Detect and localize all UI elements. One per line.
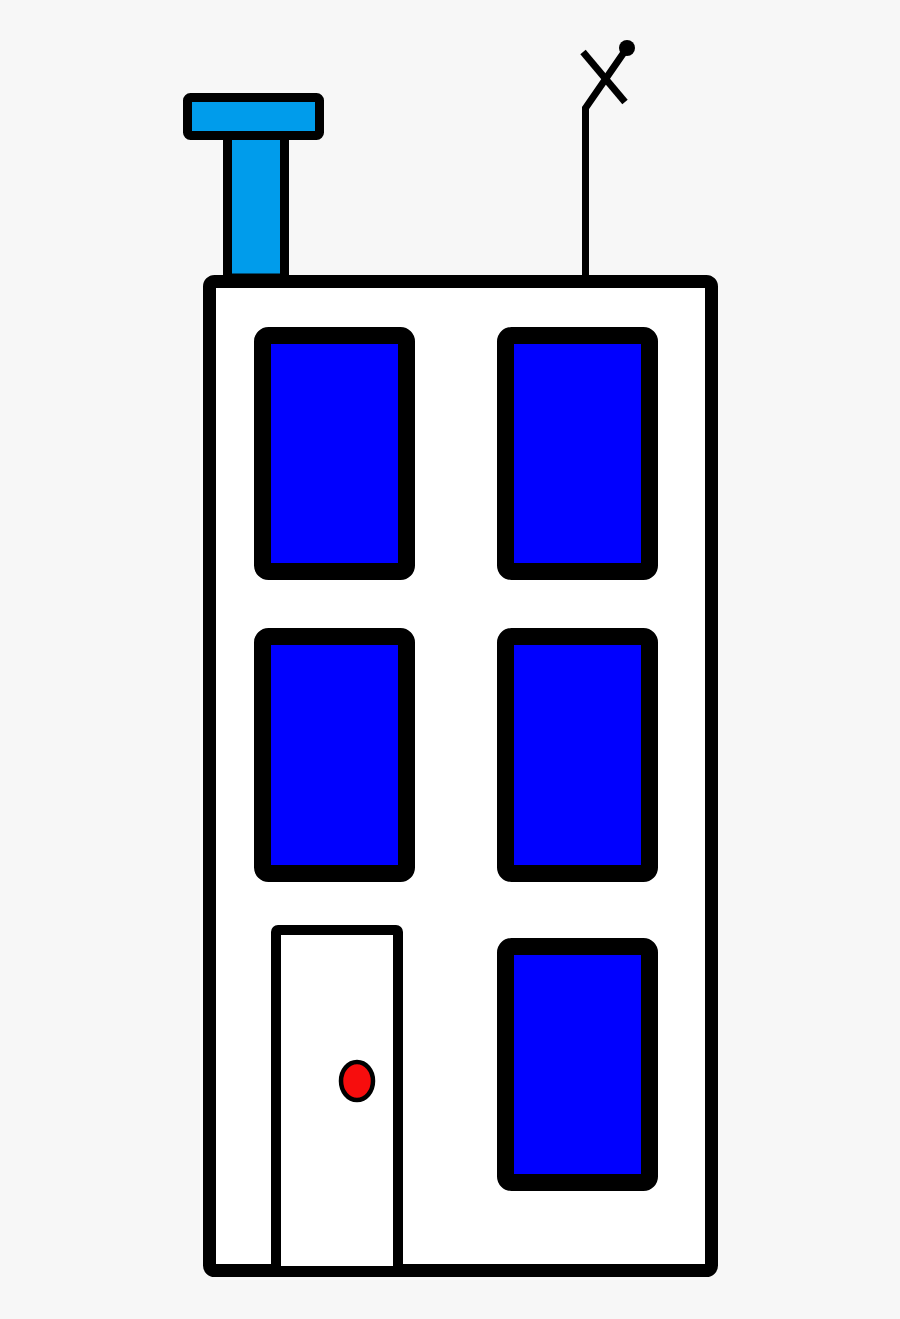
window-top-right [506, 336, 650, 572]
window-middle-left [263, 637, 407, 874]
window-top-left [263, 336, 407, 572]
doorknob [341, 1062, 373, 1100]
chimney-cap-icon [188, 98, 320, 136]
window-middle-right [506, 637, 650, 874]
building-illustration [0, 0, 900, 1319]
door [276, 930, 398, 1271]
illustration-canvas [0, 0, 900, 1319]
antenna-tip-icon [619, 40, 635, 56]
window-bottom-right [506, 947, 650, 1183]
